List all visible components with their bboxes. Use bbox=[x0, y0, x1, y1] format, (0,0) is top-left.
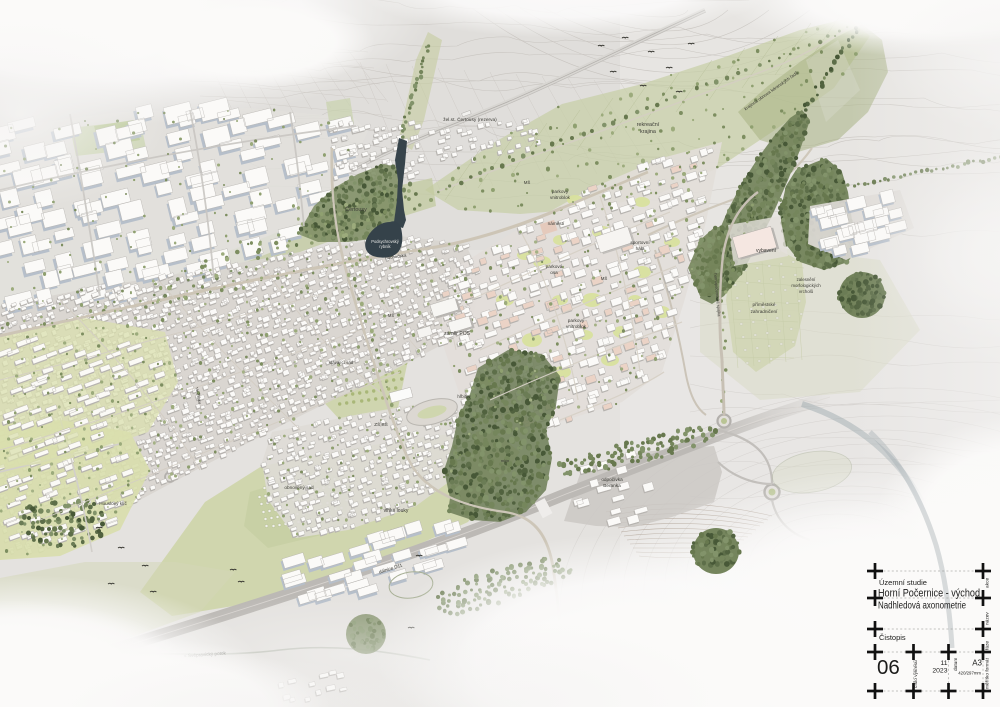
svg-text:06: 06 bbox=[877, 656, 900, 679]
svg-text:2023: 2023 bbox=[932, 668, 947, 675]
svg-text:vnitroblok: vnitroblok bbox=[550, 195, 571, 200]
svg-text:zalesnění: zalesnění bbox=[797, 277, 817, 282]
svg-text:fáze: fáze bbox=[985, 641, 991, 650]
svg-text:vlhké louky: vlhké louky bbox=[384, 508, 409, 514]
svg-text:mlýn: mlýn bbox=[501, 458, 509, 463]
svg-text:vnitroblok: vnitroblok bbox=[566, 324, 587, 329]
svg-text:sportovní: sportovní bbox=[630, 240, 650, 245]
svg-text:krajina: krajina bbox=[640, 129, 656, 135]
svg-text:parkový: parkový bbox=[568, 318, 585, 323]
svg-text:A3: A3 bbox=[972, 659, 982, 668]
svg-text:měřítko formát: měřítko formát bbox=[985, 657, 991, 689]
svg-text:ZŠ,SŠ: ZŠ,SŠ bbox=[374, 421, 388, 427]
svg-text:stávající sad: stávající sad bbox=[329, 360, 354, 365]
svg-text:rybník: rybník bbox=[379, 244, 391, 249]
svg-text:Horní Počernice - východ: Horní Počernice - východ bbox=[878, 588, 980, 600]
svg-text:vrcholů: vrcholů bbox=[799, 289, 814, 294]
svg-text:odpočívka: odpočívka bbox=[601, 477, 623, 482]
svg-text:vybavení: vybavení bbox=[756, 248, 777, 254]
svg-text:parkový: parkový bbox=[552, 189, 569, 194]
svg-text:11: 11 bbox=[940, 660, 947, 667]
svg-text:číslo výkresu: číslo výkresu bbox=[913, 660, 919, 688]
svg-text:akce: akce bbox=[985, 578, 991, 588]
svg-text:datum: datum bbox=[953, 658, 959, 671]
svg-text:MŠ: MŠ bbox=[388, 313, 394, 318]
svg-text:žel.st. Čertousy (rezerva): žel.st. Čertousy (rezerva) bbox=[443, 116, 497, 123]
svg-text:parková: parková bbox=[546, 264, 563, 269]
svg-text:Čistopis: Čistopis bbox=[879, 633, 906, 642]
svg-text:420/297mm: 420/297mm bbox=[958, 671, 981, 676]
svg-text:náměstí: náměstí bbox=[548, 221, 565, 226]
svg-text:hala: hala bbox=[636, 246, 645, 251]
svg-text:hřbitov: hřbitov bbox=[457, 394, 471, 399]
svg-text:Čertousy: Čertousy bbox=[345, 206, 367, 213]
svg-text:název: název bbox=[985, 612, 991, 625]
svg-text:morfologických: morfologických bbox=[791, 283, 821, 288]
svg-text:Beranka: Beranka bbox=[603, 483, 621, 488]
svg-text:záměr POS: záměr POS bbox=[444, 331, 471, 337]
svg-text:zahradničení: zahradničení bbox=[751, 309, 779, 314]
svg-text:MŠ: MŠ bbox=[524, 180, 531, 185]
svg-text:obnovený sad: obnovený sad bbox=[284, 485, 314, 490]
svg-text:rekreační: rekreační bbox=[637, 122, 660, 128]
svg-text:osa: osa bbox=[550, 270, 558, 275]
svg-text:MŠ: MŠ bbox=[601, 276, 608, 281]
svg-text:Nadhledová axonometrie: Nadhledová axonometrie bbox=[878, 601, 966, 612]
svg-text:příměstské: příměstské bbox=[753, 302, 776, 307]
svg-text:Houslový klíč: Houslový klíč bbox=[99, 501, 127, 506]
svg-text:Územní studie: Územní studie bbox=[879, 578, 927, 587]
